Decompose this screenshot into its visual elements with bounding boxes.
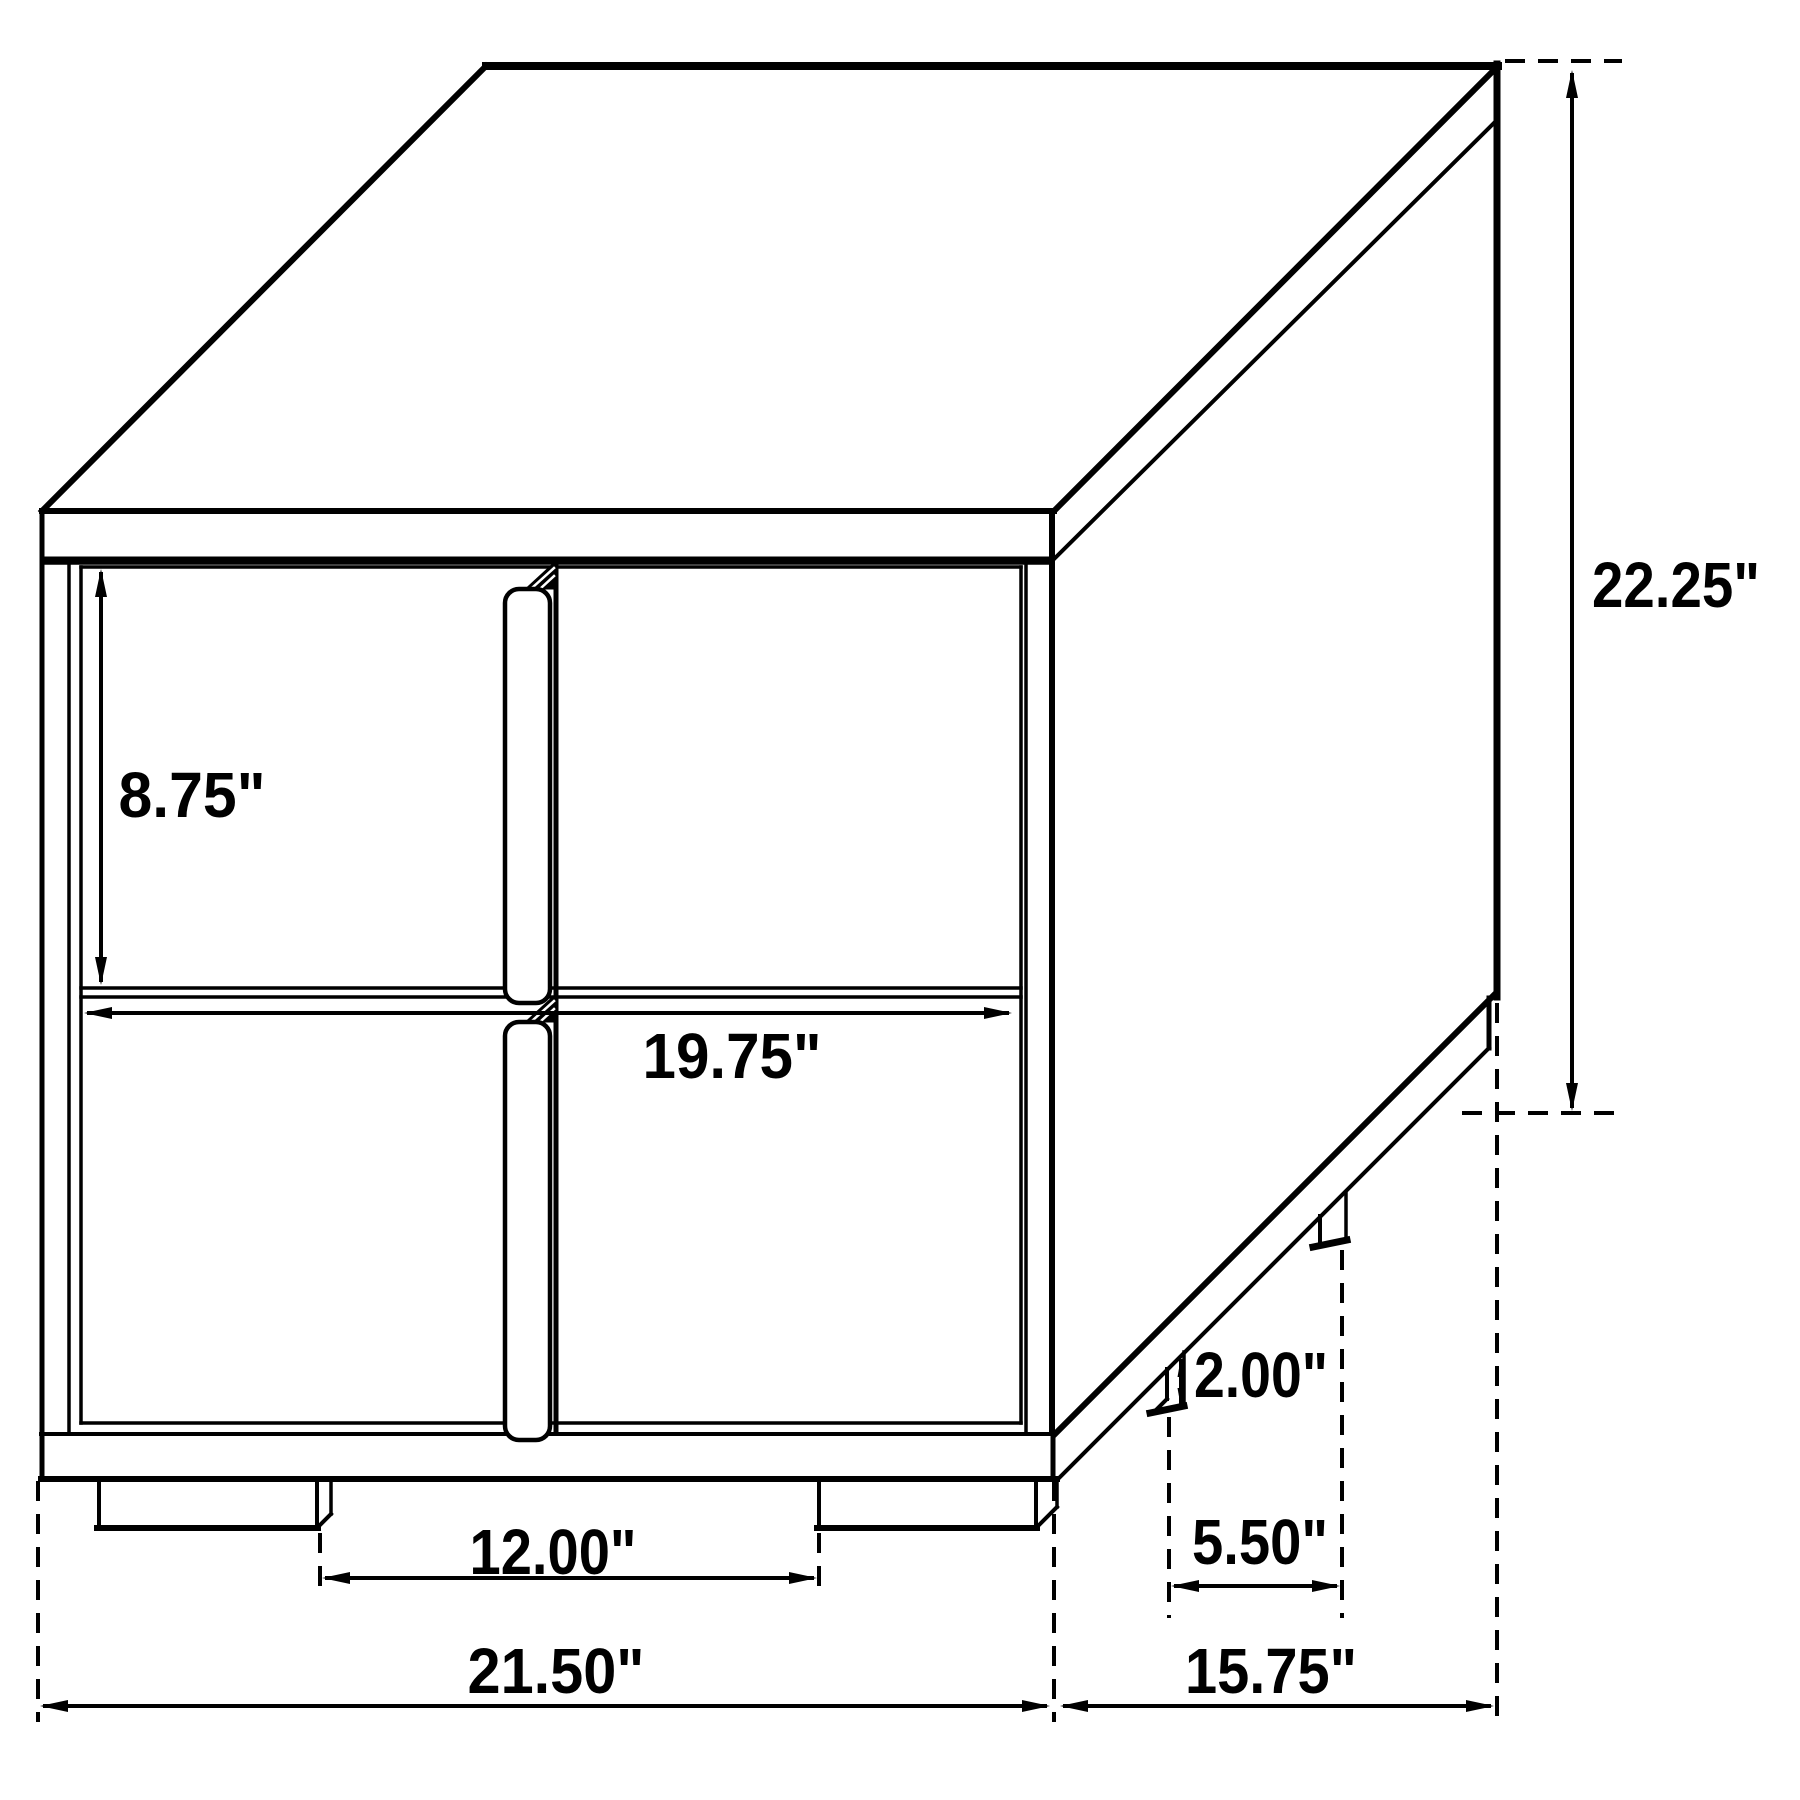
- svg-text:5.50": 5.50": [1192, 1506, 1328, 1578]
- svg-text:15.75": 15.75": [1185, 1635, 1357, 1707]
- svg-text:2.00": 2.00": [1194, 1339, 1328, 1411]
- svg-text:22.25": 22.25": [1592, 549, 1760, 621]
- svg-text:19.75": 19.75": [643, 1020, 822, 1092]
- svg-text:12.00": 12.00": [470, 1516, 637, 1588]
- svg-text:8.75": 8.75": [119, 759, 266, 831]
- svg-text:21.50": 21.50": [468, 1635, 645, 1707]
